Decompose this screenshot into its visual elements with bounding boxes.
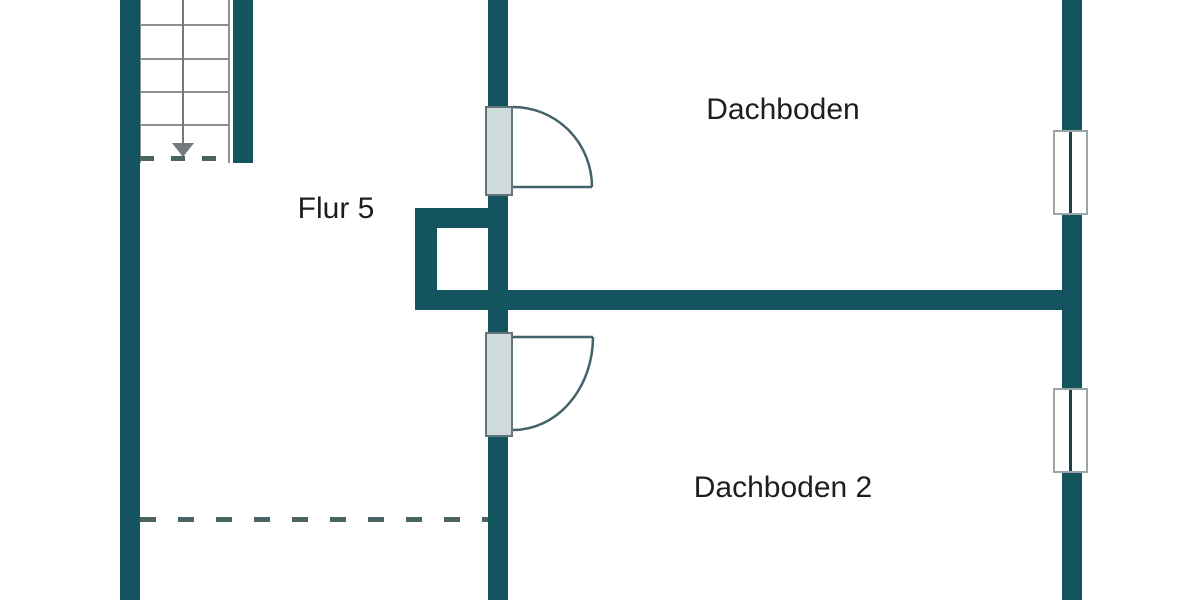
- stair-tread: [141, 124, 228, 126]
- stair-tread: [141, 58, 228, 60]
- floor-plan-canvas: Dachboden Flur 5 Dachboden 2: [0, 0, 1200, 600]
- window-upper-center-line: [1069, 132, 1072, 213]
- wall-center-top: [488, 0, 508, 107]
- wall-left-exterior: [120, 0, 140, 600]
- door-upper-leaf: [485, 106, 513, 196]
- wall-center-bottom: [488, 437, 508, 600]
- room-label-dachboden-2: Dachboden 2: [650, 471, 916, 505]
- chimney-shaft: [415, 208, 508, 310]
- door-lower-leaf: [485, 332, 513, 437]
- stair-direction-arrow-stem: [182, 0, 184, 144]
- stair-down-arrow-icon: [172, 143, 194, 157]
- window-lower-icon: [1053, 388, 1088, 473]
- room-label-dachboden: Dachboden: [650, 93, 916, 127]
- wall-horizontal-divider: [415, 290, 1082, 310]
- wall-stairwell: [233, 0, 253, 163]
- knee-wall-dashed-line: [140, 517, 488, 522]
- window-upper-icon: [1053, 130, 1088, 215]
- chimney-flue-opening: [437, 228, 488, 290]
- staircase: [140, 0, 230, 163]
- door-lower-swing-arc-icon: [513, 337, 599, 433]
- window-lower-center-line: [1069, 390, 1072, 471]
- room-label-flur-5: Flur 5: [270, 192, 402, 226]
- stair-tread: [141, 91, 228, 93]
- stair-tread: [141, 24, 228, 26]
- stair-cut-dashed-line: [140, 156, 227, 161]
- door-upper-swing-arc-icon: [513, 107, 599, 191]
